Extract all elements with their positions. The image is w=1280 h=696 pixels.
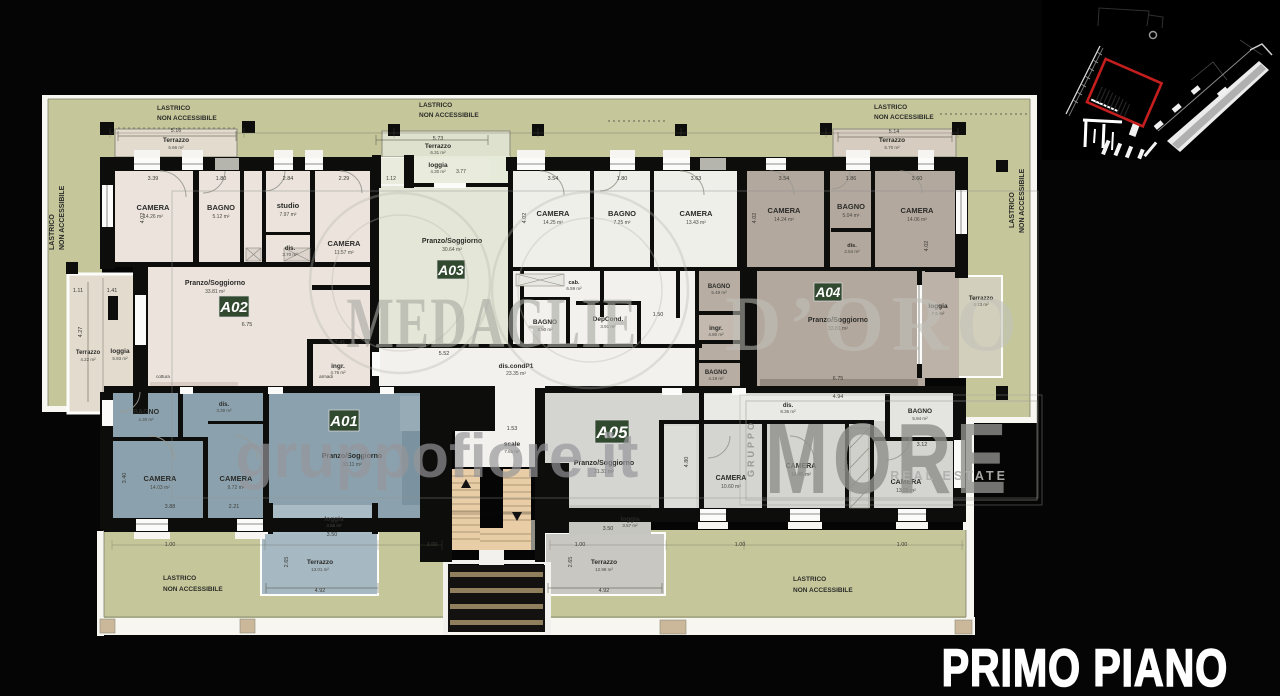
svg-text:LASTRICO: LASTRICO: [157, 105, 190, 112]
svg-text:23.35 m²: 23.35 m²: [506, 371, 526, 377]
svg-text:3.50: 3.50: [327, 532, 338, 538]
svg-text:LASTRICO: LASTRICO: [793, 576, 826, 583]
svg-text:BAGNO: BAGNO: [608, 209, 636, 218]
svg-text:CAMERA: CAMERA: [716, 475, 747, 482]
svg-text:NON ACCESSIBILE: NON ACCESSIBILE: [1019, 168, 1026, 233]
svg-text:BAGNO: BAGNO: [133, 409, 160, 416]
svg-text:2.65: 2.65: [284, 557, 290, 568]
svg-text:14.24 m²: 14.24 m²: [774, 217, 794, 223]
svg-text:MORE: MORE: [765, 403, 1011, 514]
svg-text:Pranzo/Soggiorno: Pranzo/Soggiorno: [185, 280, 245, 287]
svg-text:1.80: 1.80: [617, 176, 628, 182]
svg-text:3.70 m²: 3.70 m²: [282, 252, 298, 257]
svg-text:5.70 m²: 5.70 m²: [884, 145, 900, 150]
svg-text:1.41: 1.41: [107, 288, 118, 294]
svg-text:cottura: cottura: [156, 374, 170, 379]
svg-text:REAL ESTATE: REAL ESTATE: [890, 469, 1008, 483]
svg-text:Terrazzo: Terrazzo: [879, 137, 905, 144]
svg-text:LASTRICO: LASTRICO: [1009, 192, 1016, 228]
svg-text:LASTRICO: LASTRICO: [163, 575, 196, 582]
svg-text:Terrazzo: Terrazzo: [425, 143, 451, 150]
svg-text:NON ACCESSIBILE: NON ACCESSIBILE: [59, 185, 66, 250]
svg-text:1.11: 1.11: [73, 288, 83, 294]
svg-text:10.60 m²: 10.60 m²: [721, 484, 741, 490]
svg-text:BAGNO: BAGNO: [207, 203, 235, 212]
svg-text:3.54: 3.54: [779, 176, 790, 182]
svg-text:1.80: 1.80: [216, 176, 227, 182]
svg-text:12.98 m²: 12.98 m²: [595, 567, 613, 572]
svg-text:2.65: 2.65: [568, 557, 574, 568]
svg-text:4.92: 4.92: [315, 588, 326, 594]
svg-text:14.03 m²: 14.03 m²: [150, 485, 170, 491]
svg-text:14.06 m²: 14.06 m²: [907, 217, 927, 223]
svg-text:2.84: 2.84: [283, 176, 294, 182]
svg-text:armadi: armadi: [319, 374, 333, 379]
svg-text:4.92: 4.92: [599, 588, 610, 594]
svg-text:loggia: loggia: [110, 348, 130, 355]
svg-text:CAMERA: CAMERA: [901, 206, 934, 215]
svg-text:6.75: 6.75: [242, 322, 253, 328]
svg-text:13.01 m²: 13.01 m²: [311, 567, 329, 572]
svg-text:D’ORO: D’ORO: [725, 280, 1025, 367]
svg-text:1.12: 1.12: [386, 176, 396, 182]
svg-text:BAGNO: BAGNO: [837, 202, 865, 211]
svg-text:3.57 m²: 3.57 m²: [622, 523, 638, 528]
svg-text:5.73: 5.73: [433, 136, 444, 142]
svg-text:5.04 m²: 5.04 m²: [843, 213, 860, 219]
svg-text:NON ACCESSIBILE: NON ACCESSIBILE: [793, 587, 853, 594]
svg-text:4.02: 4.02: [924, 241, 930, 252]
svg-text:studio: studio: [277, 201, 300, 210]
svg-text:2.29: 2.29: [339, 176, 350, 182]
svg-text:LASTRICO: LASTRICO: [49, 214, 56, 250]
svg-text:14.26 m²: 14.26 m²: [143, 214, 163, 220]
svg-text:loggia: loggia: [324, 516, 344, 523]
svg-text:4.19 m²: 4.19 m²: [708, 376, 724, 381]
svg-text:2.54 m²: 2.54 m²: [844, 249, 860, 254]
svg-text:gruppofiore.it: gruppofiore.it: [236, 422, 639, 491]
svg-text:2.21: 2.21: [229, 504, 240, 510]
svg-text:4.80 m²: 4.80 m²: [708, 332, 724, 337]
svg-text:NON ACCESSIBILE: NON ACCESSIBILE: [874, 114, 934, 121]
svg-text:PRIMO PIANO: PRIMO PIANO: [942, 639, 1228, 696]
svg-text:Terrazzo: Terrazzo: [307, 559, 333, 566]
svg-text:NON ACCESSIBILE: NON ACCESSIBILE: [157, 115, 217, 122]
svg-text:loggia: loggia: [428, 162, 448, 169]
svg-text:3.39 m²: 3.39 m²: [216, 408, 232, 413]
svg-text:3.55 m²: 3.55 m²: [326, 523, 342, 528]
svg-text:5.66 m²: 5.66 m²: [168, 145, 184, 150]
svg-text:4.02: 4.02: [140, 213, 146, 224]
svg-text:1.86: 1.86: [846, 176, 857, 182]
svg-text:4.27: 4.27: [78, 327, 84, 338]
svg-text:MEDAGLIE: MEDAGLIE: [346, 284, 637, 363]
svg-text:ingr.: ingr.: [709, 325, 723, 332]
svg-text:5.93 m²: 5.93 m²: [112, 356, 128, 361]
svg-text:LASTRICO: LASTRICO: [874, 104, 907, 111]
svg-text:3.60: 3.60: [912, 176, 923, 182]
svg-text:3.50: 3.50: [603, 526, 614, 532]
svg-text:CAMERA: CAMERA: [537, 209, 570, 218]
svg-text:ingr.: ingr.: [331, 363, 345, 370]
svg-text:3.39: 3.39: [148, 176, 159, 182]
svg-text:33.81 m²: 33.81 m²: [205, 289, 225, 295]
svg-text:3.77: 3.77: [456, 169, 466, 175]
svg-text:NON ACCESSIBILE: NON ACCESSIBILE: [419, 112, 479, 119]
svg-text:4.02: 4.02: [752, 213, 758, 224]
svg-text:Terrazzo: Terrazzo: [591, 559, 617, 566]
svg-text:loggia: loggia: [620, 516, 640, 523]
svg-text:4.30 m²: 4.30 m²: [430, 169, 446, 174]
svg-text:3.54: 3.54: [548, 176, 559, 182]
svg-text:7.97 m²: 7.97 m²: [280, 212, 297, 218]
svg-text:3.63: 3.63: [691, 176, 702, 182]
svg-text:LASTRICO: LASTRICO: [419, 102, 452, 109]
svg-text:6.75: 6.75: [833, 376, 844, 382]
svg-text:CAMERA: CAMERA: [768, 206, 801, 215]
svg-text:5.12 m²: 5.12 m²: [213, 214, 230, 220]
svg-text:Terrazzo: Terrazzo: [163, 137, 189, 144]
svg-text:CAMERA: CAMERA: [680, 209, 713, 218]
svg-text:4.80: 4.80: [684, 457, 690, 468]
svg-text:A03: A03: [437, 262, 464, 278]
svg-text:3.88: 3.88: [165, 504, 176, 510]
svg-text:A02: A02: [219, 299, 248, 316]
svg-text:CAMERA: CAMERA: [137, 203, 170, 212]
svg-text:3.40: 3.40: [122, 473, 128, 484]
svg-text:5.14: 5.14: [889, 129, 900, 135]
svg-text:4.30 m²: 4.30 m²: [138, 417, 154, 422]
svg-text:NON ACCESSIBILE: NON ACCESSIBILE: [163, 586, 223, 593]
svg-text:6.31 m²: 6.31 m²: [430, 150, 446, 155]
svg-text:13.43 m²: 13.43 m²: [686, 220, 706, 226]
svg-text:GRUPPO: GRUPPO: [746, 420, 756, 477]
